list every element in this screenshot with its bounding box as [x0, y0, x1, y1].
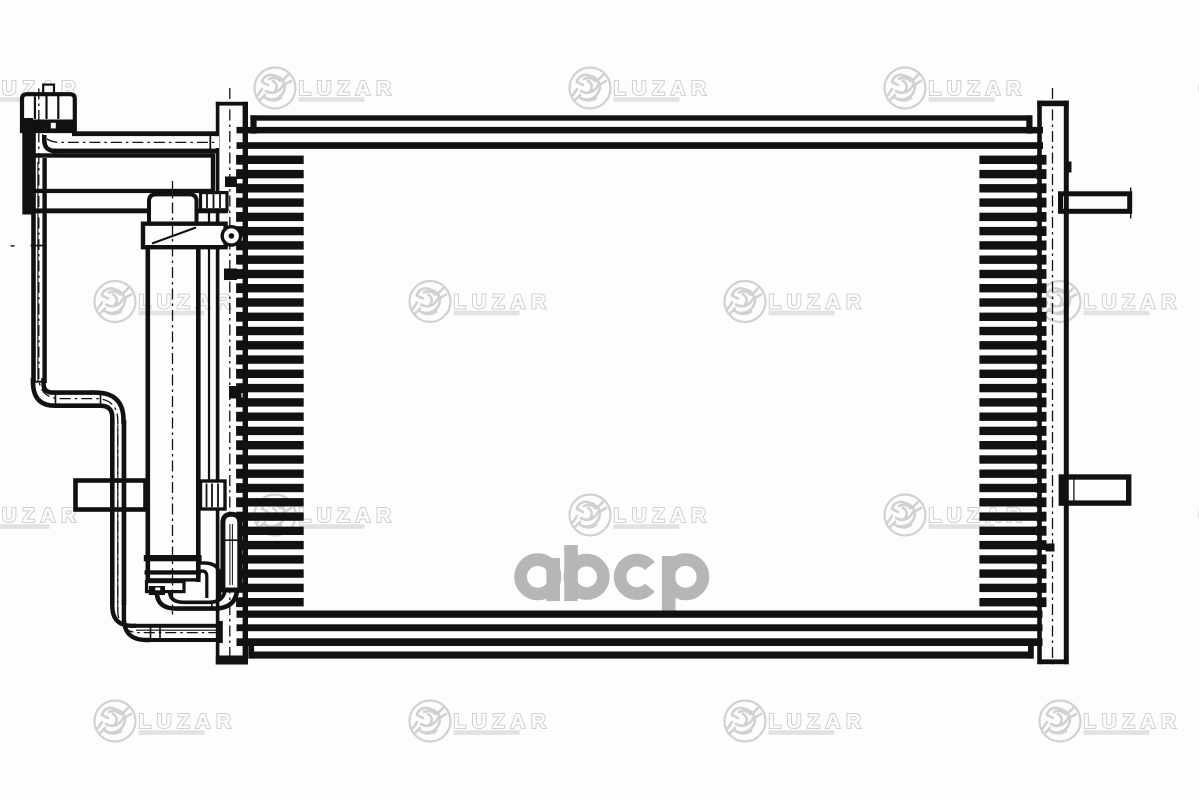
svg-text:LUZAR: LUZAR: [769, 291, 864, 314]
svg-text:LUZAR: LUZAR: [299, 77, 394, 100]
svg-text:LUZAR: LUZAR: [614, 504, 709, 527]
svg-text:LUZAR: LUZAR: [929, 77, 1024, 100]
svg-text:LUZAR: LUZAR: [454, 291, 549, 314]
svg-text:LUZAR: LUZAR: [614, 77, 709, 100]
svg-text:LUZAR: LUZAR: [769, 710, 864, 733]
svg-text:LUZAR: LUZAR: [299, 504, 394, 527]
svg-text:LUZAR: LUZAR: [1084, 291, 1179, 314]
svg-text:LUZAR: LUZAR: [454, 710, 549, 733]
svg-text:LUZAR: LUZAR: [139, 710, 234, 733]
svg-text:LUZAR: LUZAR: [1084, 710, 1179, 733]
